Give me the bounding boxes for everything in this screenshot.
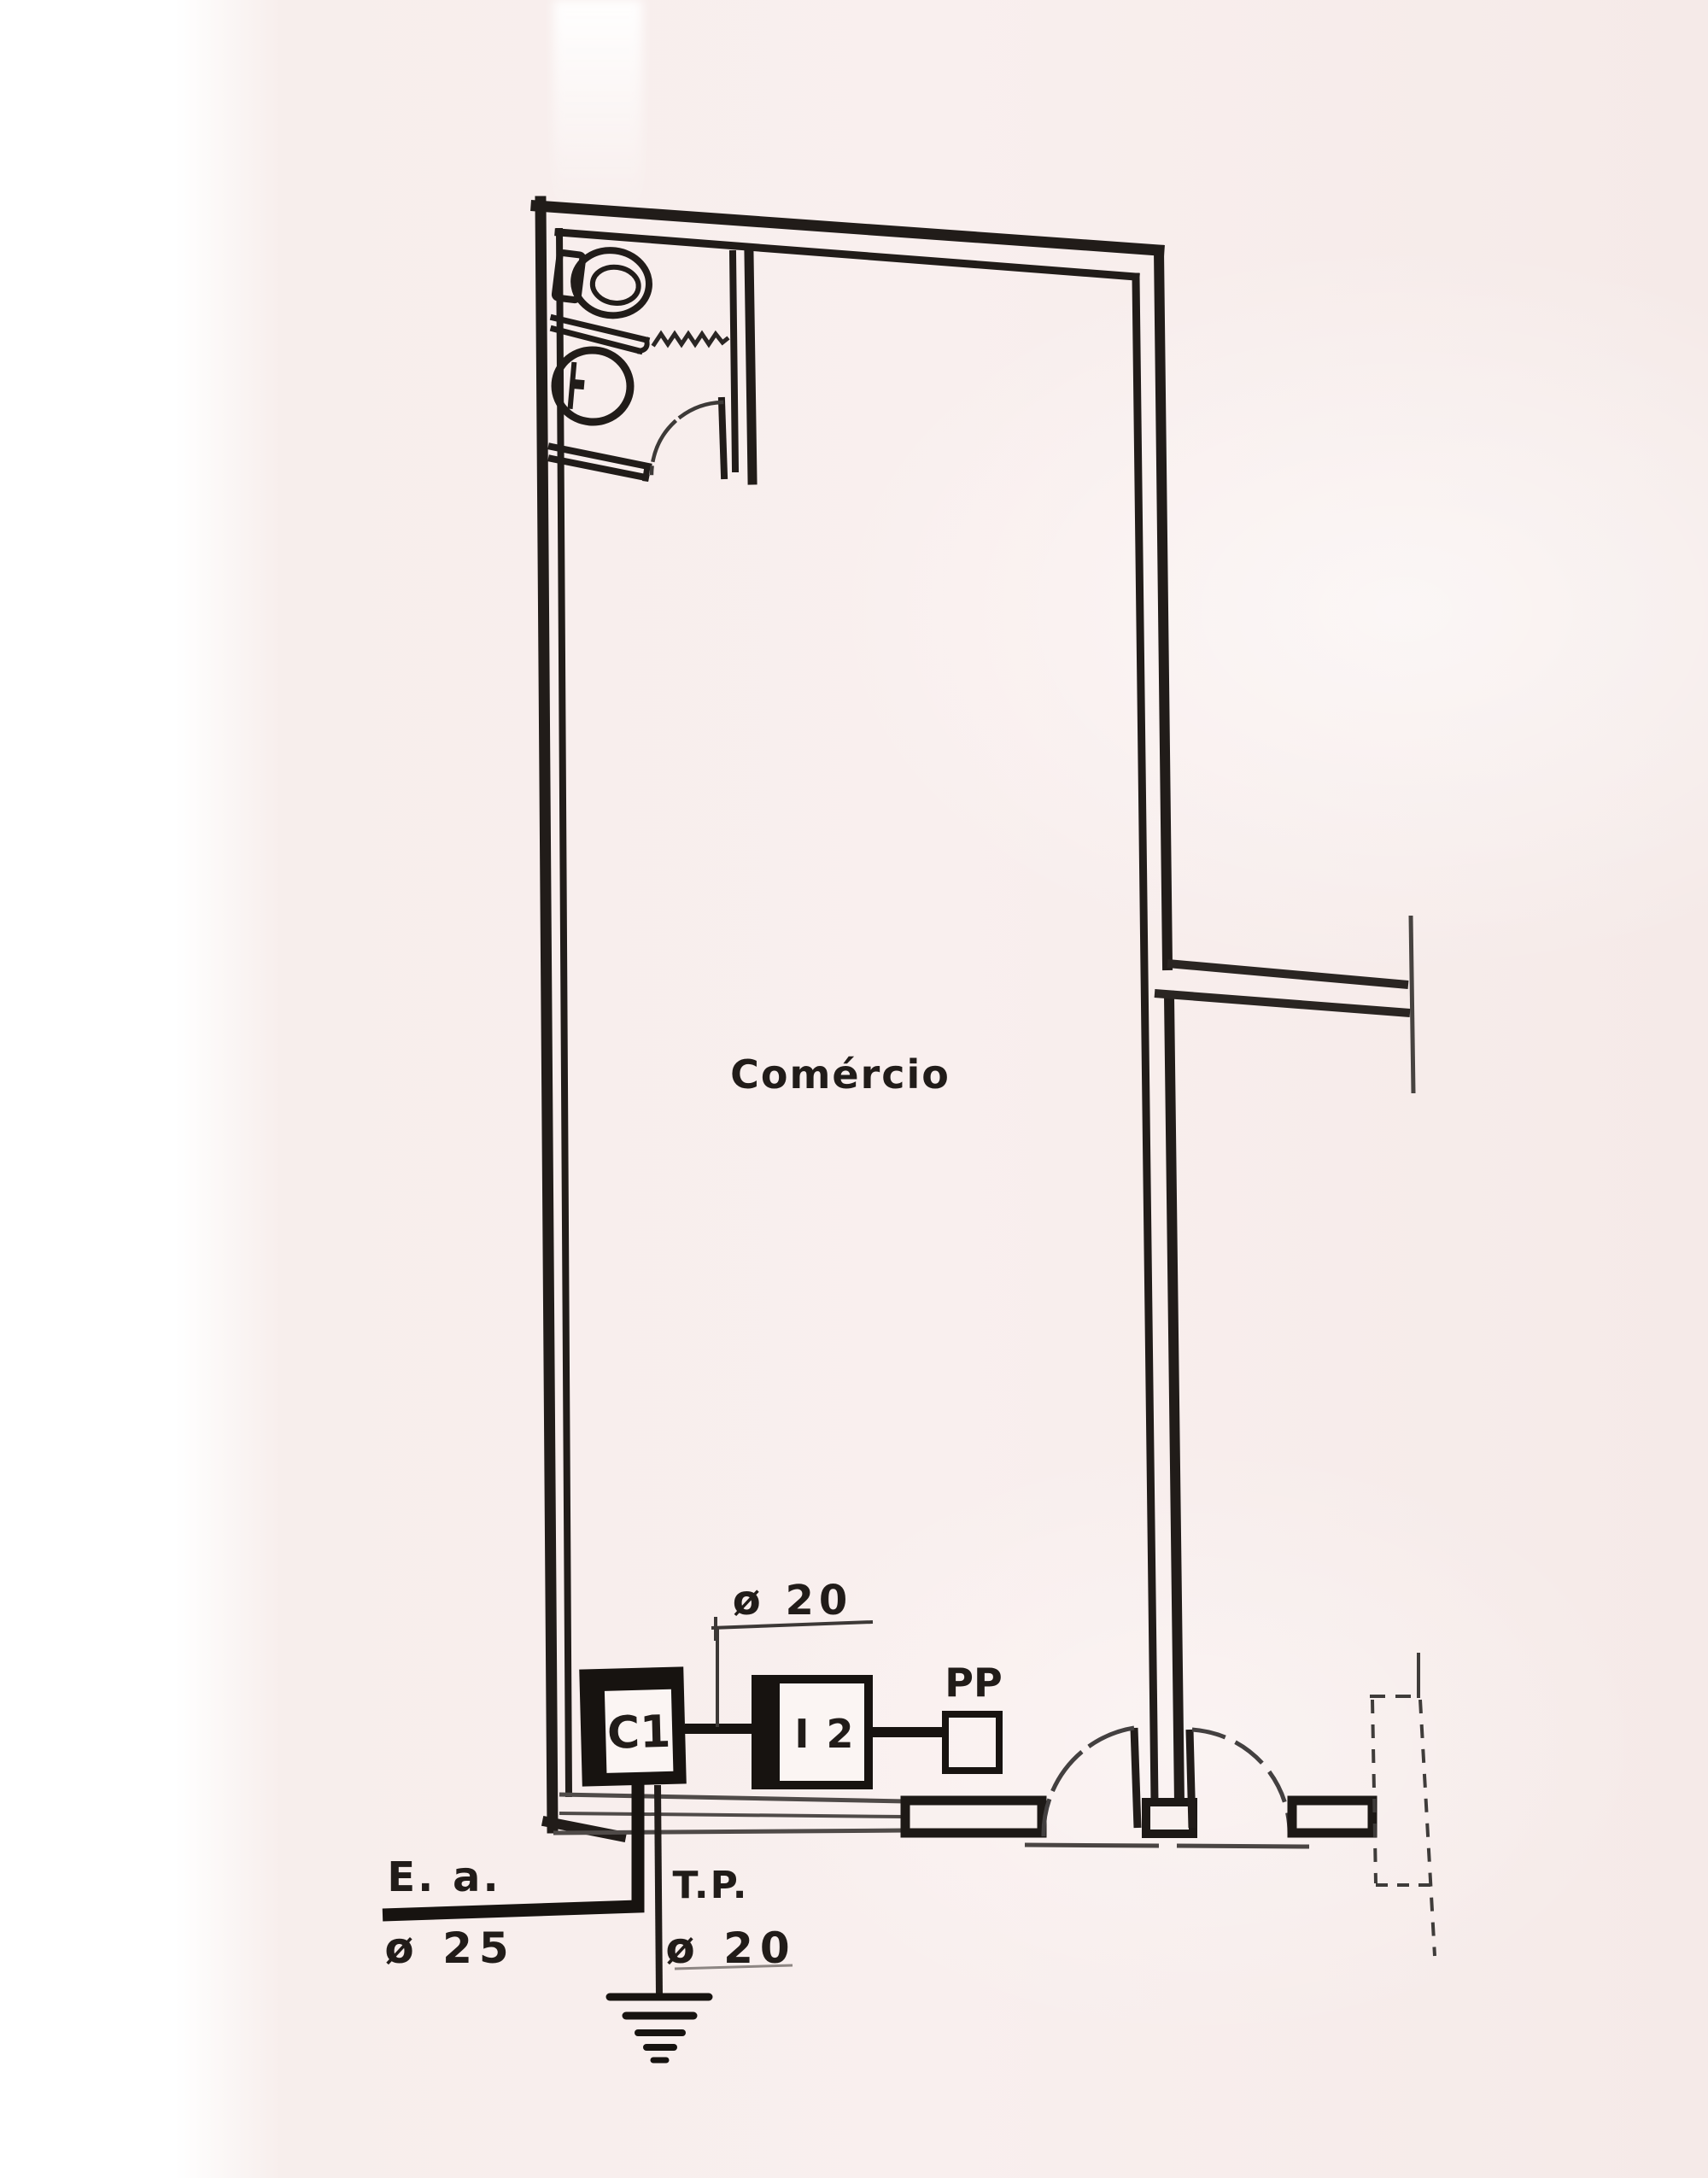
left-wall-inner <box>559 231 569 1794</box>
stub-end-cap <box>1411 916 1413 1093</box>
pp-label: PP <box>945 1660 1002 1706</box>
bathroom-wall-left-line <box>733 254 735 469</box>
right-wall-outer-upper <box>1159 250 1167 965</box>
side-fixed-panel <box>1292 1800 1372 1833</box>
shower-screen-zigzag-icon <box>654 334 727 344</box>
bathroom-wall-right-line <box>749 255 752 480</box>
stub-top-line <box>1167 963 1408 985</box>
wall-end-block <box>1146 1802 1193 1834</box>
i2-box: I 2 <box>756 1679 869 1785</box>
bathroom-bottom-wall-cap <box>646 466 647 478</box>
threshold-line-right <box>1177 1846 1309 1847</box>
ground-label: T.P. <box>673 1864 749 1907</box>
display-counter-panel <box>905 1800 1042 1833</box>
outer-walls <box>536 202 1179 1836</box>
toilet-icon <box>553 244 652 320</box>
entrance-doors <box>1025 1728 1372 1847</box>
door-right-arc <box>1192 1730 1290 1836</box>
bathroom-door-arc <box>652 402 722 473</box>
bathroom <box>552 244 752 480</box>
top-wall-outer <box>536 206 1159 250</box>
i2-label: I 2 <box>794 1711 855 1757</box>
door-left-arc <box>1044 1728 1134 1836</box>
c1-label: C1 <box>606 1707 671 1759</box>
room-label: Comércio <box>730 1051 951 1098</box>
floor-plan-drawing: Comércio <box>0 0 1708 2178</box>
bathroom-divider-a <box>553 318 646 340</box>
feeder-entry: E. a. ø 25 <box>383 1782 638 1973</box>
ground-conduit <box>658 1785 659 1996</box>
feeder-label: E. a. <box>387 1853 500 1901</box>
door-left-swing-icon <box>1044 1728 1138 1836</box>
bathroom-door-swing-icon <box>652 401 724 476</box>
conduit-dimension-label: ø 20 <box>733 1577 852 1625</box>
party-wall-stub <box>1155 916 1413 1093</box>
storefront-line-1 <box>559 1795 905 1801</box>
bathroom-door-leaf <box>722 401 724 476</box>
storefront-lines <box>553 1795 905 1833</box>
threshold-line-left <box>1025 1845 1159 1846</box>
earth-ground-icon <box>610 1997 709 2060</box>
sink-icon <box>553 347 634 424</box>
right-wall-outer-lower <box>1169 996 1179 1804</box>
door-left-leaf <box>1134 1728 1138 1828</box>
door-right-leaf <box>1190 1730 1192 1828</box>
storefront-line-2 <box>559 1813 905 1817</box>
feeder-dim-label: ø 25 <box>384 1923 515 1973</box>
projection-right <box>1420 1700 1435 1956</box>
storefront-line-3 <box>553 1830 905 1833</box>
right-wall-inner <box>1136 277 1155 1802</box>
door-right-swing-icon <box>1190 1730 1290 1836</box>
floor-plan-page: Comércio <box>0 0 1708 2178</box>
projection-left <box>1372 1700 1376 1883</box>
pp-box: PP <box>945 1660 1002 1771</box>
dashed-projection-outline <box>1370 1653 1435 1956</box>
c1-box: C1 <box>579 1666 687 1786</box>
stub-bottom-line <box>1155 993 1410 1013</box>
